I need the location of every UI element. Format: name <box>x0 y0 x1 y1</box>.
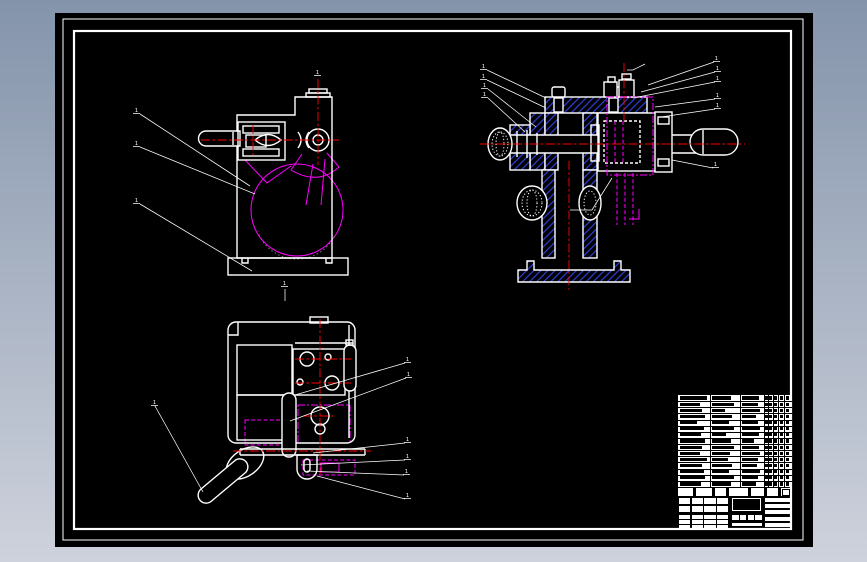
bom-row-line <box>678 426 792 427</box>
bom-row-line <box>678 450 792 451</box>
bom-cell-text <box>780 482 783 485</box>
bom-cell-text <box>780 421 783 424</box>
leader-line <box>317 476 405 499</box>
bom-row-line <box>678 413 792 414</box>
bom-cell-text <box>742 452 760 455</box>
section-view <box>480 63 745 290</box>
title-block-cell <box>704 520 715 524</box>
bom-cell-text <box>680 427 704 430</box>
bom-row-line <box>678 438 792 439</box>
bom-row-line <box>678 420 792 421</box>
bom-cell-text <box>769 396 772 399</box>
bom-cell-text <box>742 396 759 399</box>
title-block-cell <box>704 525 715 529</box>
bom-header <box>678 488 792 496</box>
bom-column-line <box>778 395 779 487</box>
output-knob <box>690 129 738 155</box>
leader-line <box>313 443 405 453</box>
bom-table <box>678 395 792 487</box>
bom-cell-text <box>769 446 772 449</box>
bom-header-gap <box>778 488 781 496</box>
bom-cell-text <box>742 470 760 473</box>
bom-cell-text <box>680 476 705 479</box>
bom-cell-text <box>680 464 702 467</box>
bom-cell-text <box>712 433 726 436</box>
title-block-cell <box>679 498 690 504</box>
front-view <box>199 79 348 275</box>
bom-row-line <box>678 475 792 476</box>
bom-column-line <box>710 395 711 487</box>
bom-row-line <box>678 456 792 457</box>
bom-cell-text <box>742 482 756 485</box>
bom-row <box>678 439 792 444</box>
bom-row <box>678 469 792 474</box>
bom-cell-text <box>774 446 777 449</box>
title-block-bar <box>732 523 762 527</box>
leader-line <box>140 204 252 271</box>
title-block-right-row <box>765 517 791 521</box>
bom-cell-text <box>742 464 757 467</box>
title-block-right-row <box>765 510 791 514</box>
bom-column-line <box>784 395 785 487</box>
bom-cell-text <box>774 415 777 418</box>
title-block-cell <box>692 515 703 519</box>
bom-cell-text <box>742 476 758 479</box>
bom-cell-text <box>786 458 789 461</box>
bom-cell-text <box>780 439 783 442</box>
bom-cell-text <box>680 409 702 412</box>
bom-cell-text <box>742 439 754 442</box>
bom-cell-text <box>780 433 783 436</box>
bom-cell-text <box>742 415 756 418</box>
bom-cell-text <box>680 439 705 442</box>
bom-cell-text <box>742 421 758 424</box>
bom-cell-text <box>780 403 783 406</box>
bom-header-box <box>782 489 790 496</box>
bom-cell-text <box>680 396 707 399</box>
bom-cell-text <box>742 446 759 449</box>
bom-cell-text <box>680 482 701 485</box>
bom-row-line <box>678 401 792 402</box>
app-background: { "document": { "kind": "cad-assembly-dr… <box>0 0 867 562</box>
front-view-magenta-linework <box>245 153 343 256</box>
bom-cell-text <box>786 403 789 406</box>
top-view <box>195 317 371 506</box>
bom-cell-text <box>774 396 777 399</box>
bom-cell-text <box>774 452 777 455</box>
bom-cell-text <box>786 476 789 479</box>
bom-cell-text <box>769 439 772 442</box>
title-block-cell <box>679 525 690 529</box>
bom-cell-text <box>780 446 783 449</box>
title-block-cell <box>717 520 728 524</box>
title-block-cell <box>692 506 703 512</box>
bom-cell-text <box>769 470 772 473</box>
bom-cell-text <box>680 421 697 424</box>
bom-row <box>678 476 792 481</box>
title-block-cell <box>692 498 703 504</box>
title-block-cell <box>717 515 728 519</box>
bom-row <box>678 426 792 431</box>
bom-cell-text <box>680 452 700 455</box>
bom-cell-text <box>774 482 777 485</box>
bom-cell-text <box>680 458 707 461</box>
bom-cell-text <box>786 409 789 412</box>
bom-row-line <box>678 444 792 445</box>
bom-cell-text <box>774 464 777 467</box>
bom-cell-text <box>769 464 772 467</box>
bom-cell-text <box>712 415 732 418</box>
bom-row <box>678 396 792 401</box>
bom-cell-text <box>780 476 783 479</box>
end-bracket <box>655 112 672 172</box>
bom-cell-text <box>786 427 789 430</box>
bom-header-gap <box>764 488 767 496</box>
title-block-cell <box>679 520 690 524</box>
bom-cell-text <box>780 464 783 467</box>
bom-row-line <box>678 469 792 470</box>
leader-line <box>488 89 536 127</box>
bom-cell-text <box>769 415 772 418</box>
bom-cell-text <box>742 403 758 406</box>
lever-shaft <box>282 393 296 457</box>
handle-grip <box>195 456 251 507</box>
bom-cell-text <box>769 409 772 412</box>
bom-cell-text <box>774 427 777 430</box>
bom-cell-text <box>680 446 702 449</box>
bom-row <box>678 408 792 413</box>
bom-row-line <box>678 462 792 463</box>
bom-cell-text <box>786 439 789 442</box>
bevel-gears <box>517 186 601 220</box>
title-block-cell <box>704 506 715 512</box>
bom-cell-text <box>786 433 789 436</box>
title-block-cell <box>692 525 703 529</box>
title-block-cell <box>692 520 703 524</box>
title-block-cell <box>717 498 728 504</box>
bom-row <box>678 445 792 450</box>
bom-cell-text <box>786 464 789 467</box>
bom-cell-text <box>786 396 789 399</box>
bom-cell-text <box>742 458 758 461</box>
bom-cell-text <box>774 403 777 406</box>
bom-cell-text <box>712 482 731 485</box>
title-block-right-row <box>765 498 791 502</box>
bom-cell-text <box>680 403 700 406</box>
top-fitting <box>604 64 645 97</box>
title-block-cell <box>679 515 690 519</box>
bom-cell-text <box>774 439 777 442</box>
bom-cell-text <box>774 409 777 412</box>
bom-row <box>678 420 792 425</box>
bom-cell-text <box>680 433 701 436</box>
bom-cell-text <box>774 421 777 424</box>
title-block <box>678 496 792 530</box>
bom-cell-text <box>786 482 789 485</box>
title-block-cell <box>717 525 728 529</box>
bom-cell-text <box>769 433 772 436</box>
bom-cell-text <box>780 458 783 461</box>
bom-cell-text <box>712 452 730 455</box>
bom-row-line <box>678 432 792 433</box>
leader-line <box>633 82 715 98</box>
bom-cell-text <box>712 458 728 461</box>
bom-cell-text <box>712 421 729 424</box>
bom-cell-text <box>786 446 789 449</box>
bom-column-line <box>768 395 769 487</box>
bom-cell-text <box>780 415 783 418</box>
leader-line <box>655 99 715 107</box>
bom-cell-text <box>774 458 777 461</box>
bom-cell-text <box>769 421 772 424</box>
title-block-cell <box>704 498 715 504</box>
bom-row <box>678 451 792 456</box>
bom-header-gap <box>748 488 751 496</box>
bom-cell-text <box>712 409 725 412</box>
bom-header-gap <box>726 488 729 496</box>
bom-cell-text <box>712 476 734 479</box>
bom-cell-text <box>712 439 731 442</box>
bom-cell-text <box>786 452 789 455</box>
bom-header-gap <box>693 488 696 496</box>
title-block-drawing-title-box <box>732 498 761 511</box>
bom-cell-text <box>742 433 759 436</box>
bom-cell-text <box>774 433 777 436</box>
bom-cell-text <box>786 421 789 424</box>
bom-row-line <box>678 481 792 482</box>
title-block-right-row <box>765 523 791 527</box>
bom-cell-text <box>742 409 760 412</box>
leader-line <box>488 98 525 132</box>
title-block-right-row <box>765 504 791 508</box>
bom-cell-text <box>769 482 772 485</box>
bom-cell-text <box>774 470 777 473</box>
title-block-stamp-cell <box>755 515 762 520</box>
bom-cell-text <box>769 458 772 461</box>
title-block-stamp-cell <box>740 515 747 520</box>
bom-cell-text <box>742 427 760 430</box>
title-block-stamp-cell <box>748 515 755 520</box>
bom-cell-text <box>712 427 734 430</box>
bom-row <box>678 402 792 407</box>
leader-line <box>672 160 713 168</box>
title-block-stamp-cell <box>732 515 739 520</box>
bom-row <box>678 414 792 419</box>
bom-header-gap <box>712 488 715 496</box>
bom-cell-text <box>780 427 783 430</box>
drawing-canvas: 1111111111111111111111 <box>55 13 813 547</box>
bom-cell-text <box>712 396 731 399</box>
bom-cell-text <box>774 476 777 479</box>
title-block-bar <box>732 528 762 530</box>
title-block-cell <box>717 506 728 512</box>
bom-cell-text <box>780 452 783 455</box>
bom-cell-text <box>786 415 789 418</box>
bom-cell-text <box>780 409 783 412</box>
bom-row-line <box>678 407 792 408</box>
title-block-cell <box>704 515 715 519</box>
bom-cell-text <box>769 403 772 406</box>
bom-row <box>678 482 792 487</box>
bom-cell-text <box>769 476 772 479</box>
title-block-cell <box>679 506 690 512</box>
bom-cell-text <box>680 415 705 418</box>
bom-cell-text <box>769 427 772 430</box>
bom-cell-text <box>712 470 729 473</box>
bom-cell-text <box>680 470 704 473</box>
bom-row <box>678 457 792 462</box>
bom-cell-text <box>769 452 772 455</box>
bom-row <box>678 463 792 468</box>
bom-column-line <box>773 395 774 487</box>
bom-cell-text <box>712 446 734 449</box>
leader-line <box>140 114 250 186</box>
bom-cell-text <box>780 470 783 473</box>
bom-cell-text <box>712 403 734 406</box>
leader-line <box>155 406 203 492</box>
bom-row <box>678 433 792 438</box>
bom-cell-text <box>786 470 789 473</box>
bom-column-line <box>764 395 765 487</box>
bom-cell-text <box>780 396 783 399</box>
bom-cell-text <box>712 464 732 467</box>
bom-column-line <box>740 395 741 487</box>
